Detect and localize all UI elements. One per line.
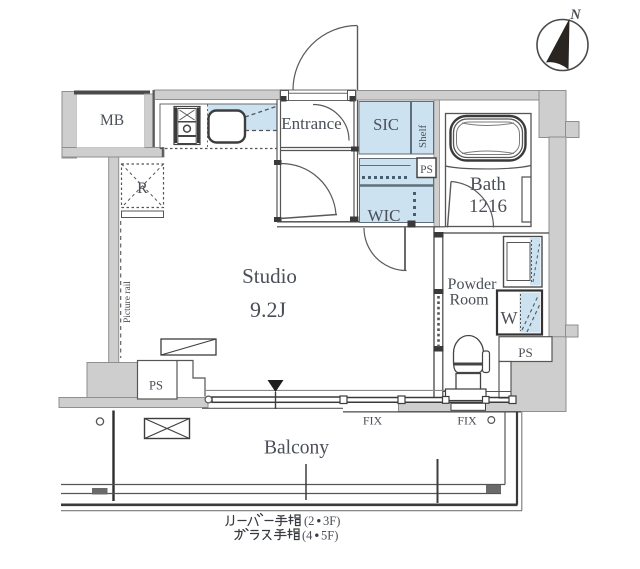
svg-text:Studio: Studio: [242, 264, 297, 288]
svg-text:Bath: Bath: [470, 174, 506, 195]
svg-text:Picture rail: Picture rail: [123, 281, 133, 323]
svg-text:R: R: [137, 180, 148, 197]
svg-text:FIX: FIX: [363, 414, 383, 428]
svg-text:FIX: FIX: [457, 414, 477, 428]
svg-text:SIC: SIC: [373, 115, 399, 134]
svg-text:PS: PS: [149, 379, 163, 393]
svg-text:3F): 3F): [323, 514, 340, 528]
svg-text:(4: (4: [302, 529, 313, 543]
svg-text:PS: PS: [420, 164, 433, 176]
svg-text:9.2J: 9.2J: [250, 297, 287, 322]
svg-text:Powder: Powder: [448, 276, 498, 293]
svg-text:Balcony: Balcony: [264, 438, 329, 459]
svg-text:N: N: [569, 7, 581, 23]
svg-text:5F): 5F): [321, 529, 338, 543]
svg-text:Room: Room: [449, 292, 489, 309]
svg-text:Entrance: Entrance: [281, 114, 341, 133]
svg-text:(2: (2: [304, 514, 314, 528]
svg-text:PS: PS: [518, 345, 532, 360]
svg-text:W: W: [501, 308, 518, 328]
svg-text:Shelf: Shelf: [417, 124, 429, 148]
svg-text:MB: MB: [100, 112, 124, 129]
svg-text:WIC: WIC: [367, 206, 400, 225]
